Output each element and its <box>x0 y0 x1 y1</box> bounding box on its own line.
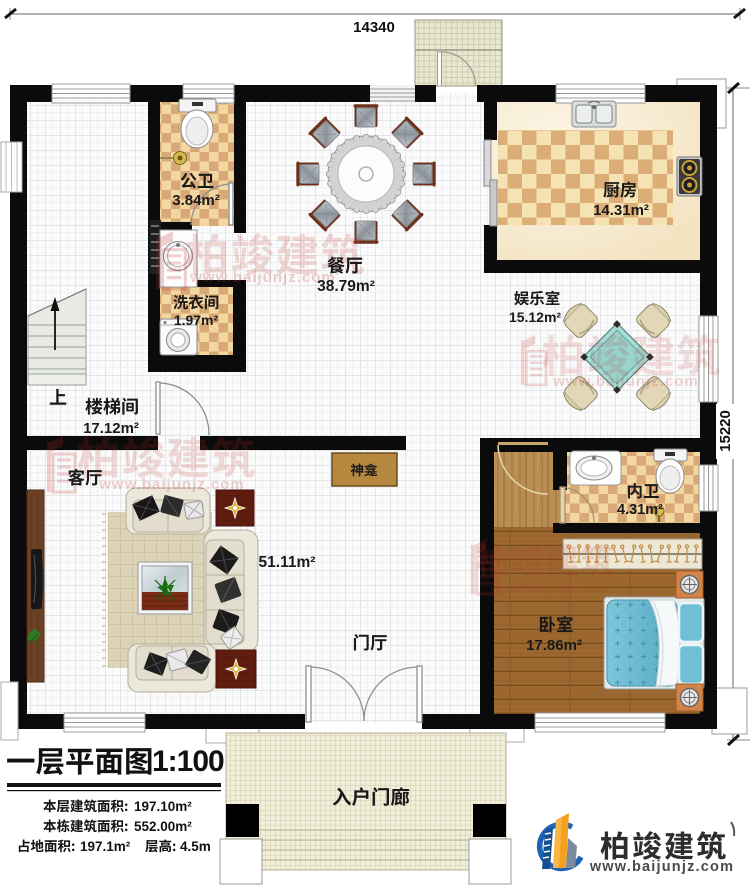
svg-text:17.86m²: 17.86m² <box>526 637 582 654</box>
svg-text:www.baijunjz.com: www.baijunjz.com <box>189 269 335 286</box>
svg-text:15220: 15220 <box>717 410 734 452</box>
svg-text:www.baijunjz.com: www.baijunjz.com <box>552 373 698 390</box>
svg-text:www.baijunjz.com: www.baijunjz.com <box>489 581 610 595</box>
svg-text:www.baijunjz.com: www.baijunjz.com <box>98 476 244 493</box>
svg-text:51.11m²: 51.11m² <box>259 554 316 571</box>
svg-text:552.00m²: 552.00m² <box>134 819 192 834</box>
svg-text:14.31m²: 14.31m² <box>593 202 649 219</box>
svg-text:197.10m²: 197.10m² <box>134 799 192 814</box>
svg-text:4.31m²: 4.31m² <box>617 502 663 518</box>
svg-text:197.1m²: 197.1m² <box>80 839 131 854</box>
svg-text:38.79m²: 38.79m² <box>317 278 375 295</box>
svg-text:1.97m²: 1.97m² <box>174 312 219 328</box>
svg-text:4.5m: 4.5m <box>180 839 211 854</box>
svg-text:15.12m²: 15.12m² <box>509 309 561 325</box>
svg-text:1:100: 1:100 <box>152 745 224 778</box>
svg-text:14340: 14340 <box>353 19 395 36</box>
svg-text:17.12m²: 17.12m² <box>83 420 139 437</box>
svg-text:3.84m²: 3.84m² <box>172 192 220 209</box>
svg-text:www.baijunjz.com: www.baijunjz.com <box>589 859 734 875</box>
